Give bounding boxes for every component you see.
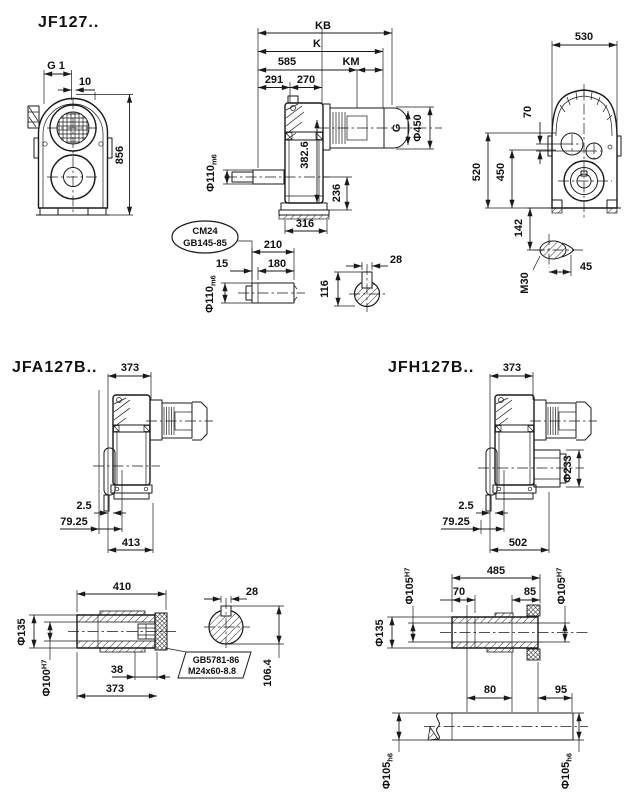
jf127-title: JF127.. [38, 14, 99, 31]
dim-135-dia-jfh: Φ135 [374, 619, 386, 646]
dim-70-rear: 70 [522, 106, 534, 118]
dim-135-dia-jfa: Φ135 [16, 618, 28, 645]
dim-15: 15 [216, 258, 228, 270]
jfh127b-title: JFH127B.. [388, 359, 474, 376]
jfh-shaft-detail: 485 70 85 Φ135 Φ105H7 Φ105H7 80 95 Φ105h… [374, 565, 588, 789]
dim-79-25-jfh: 79.25 [442, 516, 470, 528]
dim-80: 80 [484, 684, 496, 696]
jfa127b-title: JFA127B.. [12, 359, 97, 376]
dim-142: 142 [513, 219, 525, 237]
jf127-front-view: JF127.. G 1 10 856 [28, 14, 133, 215]
dim-373-shaft: 373 [106, 683, 124, 695]
dim-105-h6-right: Φ105h6 [560, 753, 574, 789]
dim-2-5-jfh: 2.5 [458, 500, 473, 512]
note-gb5781: GB5781-86 [193, 655, 240, 665]
dim-k: K [313, 38, 321, 50]
dim-485: 485 [487, 565, 505, 577]
jfa127b-view: JFA127B.. 373 2.5 79.25 413 [12, 359, 213, 553]
dim-413: 413 [122, 537, 140, 549]
jf127-shaft-end-detail: CM24 GB145-85 210 180 15 Φ110m6 [172, 221, 305, 313]
dim-105-h7-left: Φ105H7 [403, 568, 417, 605]
gear-unit-dimension-sheet: JF127.. G 1 10 856 KB K 585 KM 291 270 [0, 0, 633, 803]
dim-180: 180 [268, 258, 286, 270]
dim-233-dia: Φ233 [562, 455, 574, 482]
jfh127b-view: JFH127B.. 373 Φ233 2.5 79.25 502 [388, 359, 597, 553]
dim-kb: KB [315, 20, 331, 32]
dim-70: 70 [453, 586, 465, 598]
dim-km: KM [342, 56, 359, 68]
dim-shaft-110: Φ110m6 [205, 154, 219, 192]
dim-10: 10 [79, 76, 91, 88]
dim-g1: G 1 [47, 60, 65, 72]
dim-270: 270 [297, 74, 315, 86]
technical-drawing: JF127.. G 1 10 856 KB K 585 KM 291 270 [0, 0, 633, 803]
dim-28-key: 28 [390, 254, 402, 266]
dim-450: 450 [495, 163, 507, 181]
dim-106-4: 106.4 [262, 658, 274, 686]
dim-530: 530 [575, 31, 593, 43]
dim-210: 210 [264, 239, 282, 251]
dim-856: 856 [114, 146, 126, 164]
dim-373-jfa: 373 [121, 362, 139, 374]
dim-105-h6-left: Φ105h6 [381, 753, 395, 789]
dim-316: 316 [296, 218, 314, 230]
dim-2-5-jfa: 2.5 [76, 500, 91, 512]
dim-585: 585 [278, 56, 296, 68]
dim-373-jfh: 373 [503, 362, 521, 374]
jf127-rear-view: 530 70 520 450 142 45 M30 [471, 31, 621, 294]
dim-105-h7-right: Φ105H7 [555, 568, 569, 605]
note-m24: M24x60-8.8 [188, 666, 236, 676]
dim-236: 236 [331, 184, 343, 202]
dim-382-6: 382.6 [299, 141, 311, 169]
dim-m30: M30 [519, 272, 531, 293]
callout-gb145: GB145-85 [183, 238, 228, 249]
dim-410: 410 [113, 581, 131, 593]
dim-45: 45 [580, 261, 592, 273]
output-shaft-key-section: 28 116 [319, 254, 402, 312]
dim-291: 291 [265, 74, 283, 86]
dim-79-25-jfa: 79.25 [60, 516, 88, 528]
jf127-side-view: KB K 585 KM 291 270 G Φ450 382.6 236 316 [205, 20, 442, 234]
dim-100-h7: Φ100H7 [40, 660, 54, 697]
dim-520: 520 [471, 163, 483, 181]
dim-450-dia: Φ450 [412, 114, 424, 141]
dim-38: 38 [111, 664, 123, 676]
dim-28-jfa: 28 [246, 586, 258, 598]
dim-95: 95 [555, 684, 567, 696]
dim-85: 85 [524, 586, 536, 598]
dim-g: G [391, 124, 403, 133]
dim-116: 116 [319, 280, 331, 298]
dim-502: 502 [509, 537, 527, 549]
callout-cm24: CM24 [192, 226, 218, 237]
dim-shaft-110-detail: Φ110m6 [204, 275, 218, 313]
jfa-hollow-shaft-detail: 410 Φ135 Φ100H7 38 373 28 106.4 GB5781-8… [16, 581, 284, 699]
